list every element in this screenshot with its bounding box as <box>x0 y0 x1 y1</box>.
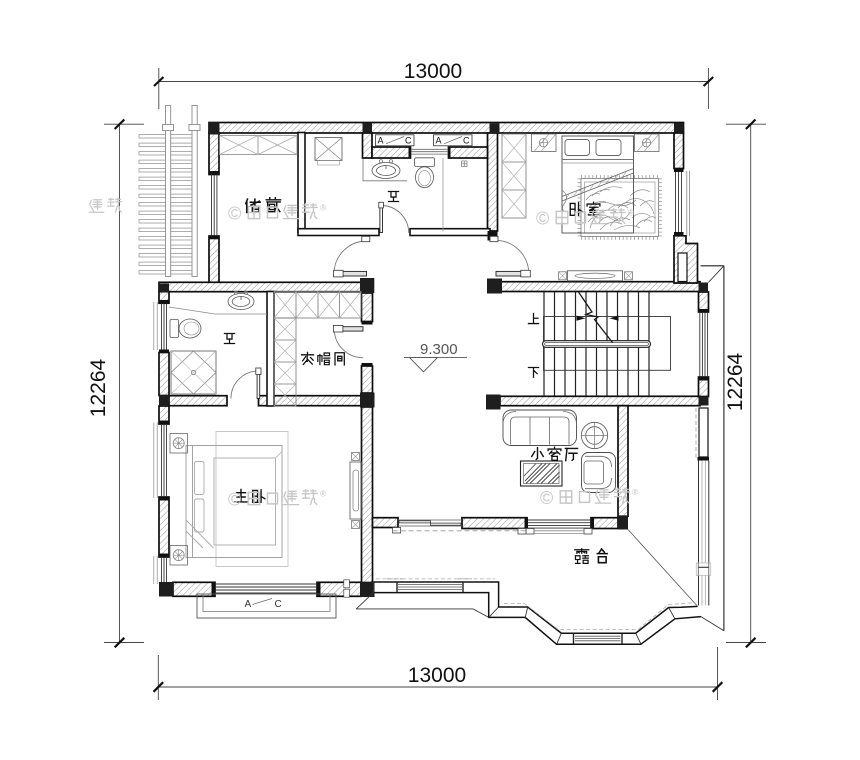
svg-text:C: C <box>405 135 412 145</box>
svg-text:©: © <box>228 204 241 224</box>
svg-text:12264: 12264 <box>87 358 110 417</box>
svg-text:©: © <box>536 209 549 229</box>
svg-text:13000: 13000 <box>404 60 462 83</box>
svg-text:®: ® <box>320 203 327 213</box>
svg-text:A: A <box>245 599 252 610</box>
svg-text:©: © <box>228 490 241 510</box>
svg-text:A: A <box>378 135 384 145</box>
svg-text:®: ® <box>628 208 635 218</box>
svg-text:A: A <box>436 135 442 145</box>
svg-text:12264: 12264 <box>724 352 747 411</box>
svg-text:®: ® <box>632 487 639 497</box>
svg-text:®: ® <box>320 489 327 499</box>
svg-text:C: C <box>463 135 470 145</box>
svg-text:9.300: 9.300 <box>420 341 458 358</box>
svg-text:C: C <box>275 599 282 610</box>
svg-text:13000: 13000 <box>408 664 466 687</box>
svg-text:©: © <box>540 488 553 508</box>
